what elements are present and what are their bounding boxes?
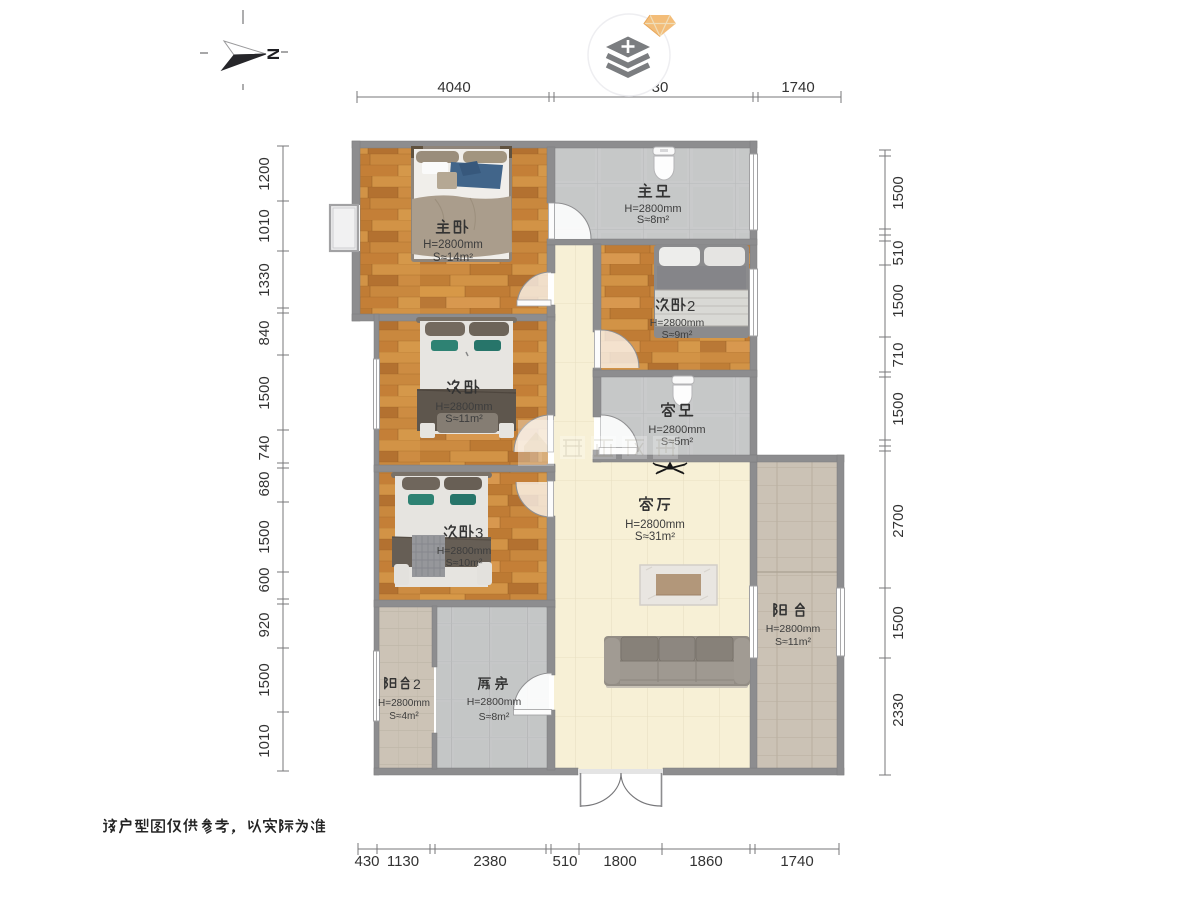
svg-text:1500: 1500 bbox=[890, 392, 907, 425]
svg-text:1200: 1200 bbox=[256, 157, 273, 190]
svg-text:3: 3 bbox=[475, 525, 483, 542]
svg-text:510: 510 bbox=[890, 240, 907, 265]
svg-text:600: 600 bbox=[256, 567, 273, 592]
svg-text:1740: 1740 bbox=[780, 853, 813, 870]
svg-text:1330: 1330 bbox=[256, 263, 273, 296]
svg-text:N: N bbox=[264, 48, 283, 60]
svg-text:1500: 1500 bbox=[256, 663, 273, 696]
svg-text:1500: 1500 bbox=[256, 376, 273, 409]
svg-text:2700: 2700 bbox=[890, 504, 907, 537]
svg-text:S≈11m²: S≈11m² bbox=[775, 636, 811, 648]
svg-text:1800: 1800 bbox=[603, 853, 636, 870]
svg-text:710: 710 bbox=[890, 342, 907, 367]
svg-text:680: 680 bbox=[256, 471, 273, 496]
svg-text:1010: 1010 bbox=[256, 209, 273, 242]
svg-text:S≈8m²: S≈8m² bbox=[637, 214, 670, 226]
svg-text:4040: 4040 bbox=[437, 79, 470, 96]
svg-text:1500: 1500 bbox=[256, 520, 273, 553]
svg-text:2380: 2380 bbox=[473, 853, 506, 870]
svg-text:H=2800mm: H=2800mm bbox=[435, 401, 492, 413]
svg-text:H=2800mm: H=2800mm bbox=[423, 239, 483, 251]
svg-text:S≈4m²: S≈4m² bbox=[389, 711, 419, 722]
svg-text:S≈31m²: S≈31m² bbox=[635, 531, 675, 543]
svg-text:H=2800mm: H=2800mm bbox=[766, 623, 821, 635]
svg-text:H=2800mm: H=2800mm bbox=[648, 424, 705, 436]
svg-text:H=2800mm: H=2800mm bbox=[467, 696, 522, 708]
svg-text:1500: 1500 bbox=[890, 606, 907, 639]
svg-text:1130: 1130 bbox=[387, 853, 419, 870]
svg-text:H=2800mm: H=2800mm bbox=[625, 519, 685, 531]
svg-text:S≈14m²: S≈14m² bbox=[433, 252, 473, 264]
svg-text:S≈10m²: S≈10m² bbox=[446, 557, 483, 569]
svg-text:S≈8m²: S≈8m² bbox=[479, 711, 510, 723]
svg-text:430: 430 bbox=[354, 853, 379, 870]
svg-text:1500: 1500 bbox=[890, 176, 907, 209]
svg-text:1010: 1010 bbox=[256, 724, 273, 757]
svg-text:H=2800mm: H=2800mm bbox=[378, 698, 430, 709]
svg-text:S≈9m²: S≈9m² bbox=[662, 329, 693, 341]
svg-text:740: 740 bbox=[256, 435, 273, 460]
svg-text:2: 2 bbox=[687, 298, 695, 315]
svg-text:1740: 1740 bbox=[781, 79, 814, 96]
svg-text:1500: 1500 bbox=[890, 284, 907, 317]
svg-text:H=2800mm: H=2800mm bbox=[437, 545, 492, 557]
svg-text:H=2800mm: H=2800mm bbox=[650, 317, 705, 329]
svg-text:920: 920 bbox=[256, 612, 273, 637]
svg-text:840: 840 bbox=[256, 320, 273, 345]
svg-text:1860: 1860 bbox=[689, 853, 722, 870]
svg-text:S≈11m²: S≈11m² bbox=[445, 413, 483, 425]
svg-text:2: 2 bbox=[413, 676, 421, 692]
svg-text:510: 510 bbox=[552, 853, 577, 870]
svg-text:2330: 2330 bbox=[890, 693, 907, 726]
